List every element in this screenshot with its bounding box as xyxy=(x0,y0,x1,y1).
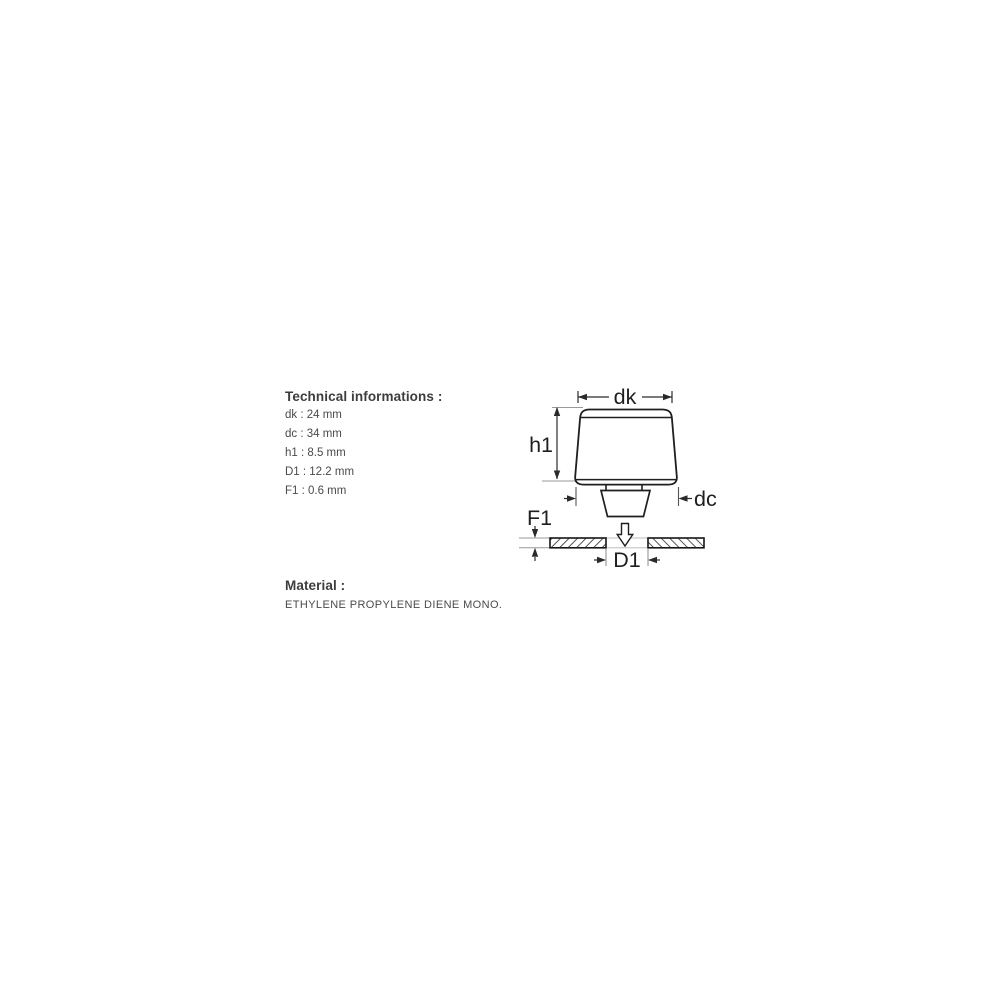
D1-label: D1 xyxy=(613,548,640,572)
spec-row-h1: h1 : 8.5 mm xyxy=(285,444,354,463)
spec-row-dk: dk : 24 mm xyxy=(285,406,354,425)
dk-arrow-right-icon xyxy=(663,394,672,400)
panel-left-hatched xyxy=(550,538,606,548)
spec-row-D1: D1 : 12.2 mm xyxy=(285,463,354,482)
dk-label: dk xyxy=(614,385,637,409)
page: Technical informations : dk : 24 mm dc :… xyxy=(0,0,1000,1000)
F1-label: F1 xyxy=(527,506,552,530)
insertion-arrow-icon xyxy=(617,524,633,547)
h1-label: h1 xyxy=(529,433,553,457)
technical-informations-list: dk : 24 mm dc : 34 mm h1 : 8.5 mm D1 : 1… xyxy=(285,406,354,501)
dc-label: dc xyxy=(694,487,717,511)
panel-right-hatched xyxy=(648,538,704,548)
material-heading: Material : xyxy=(285,578,345,593)
bumper-cap-outline xyxy=(575,410,677,485)
technical-informations-heading: Technical informations : xyxy=(285,389,442,404)
dk-arrow-left-icon xyxy=(578,394,587,400)
bumper-plug xyxy=(601,491,650,517)
material-value: ETHYLENE PROPYLENE DIENE MONO. xyxy=(285,599,502,611)
spec-row-F1: F1 : 0.6 mm xyxy=(285,482,354,501)
technical-drawing: dk h1 dc F1 xyxy=(515,380,730,580)
F1-dimension xyxy=(519,526,550,561)
spec-row-dc: dc : 34 mm xyxy=(285,425,354,444)
